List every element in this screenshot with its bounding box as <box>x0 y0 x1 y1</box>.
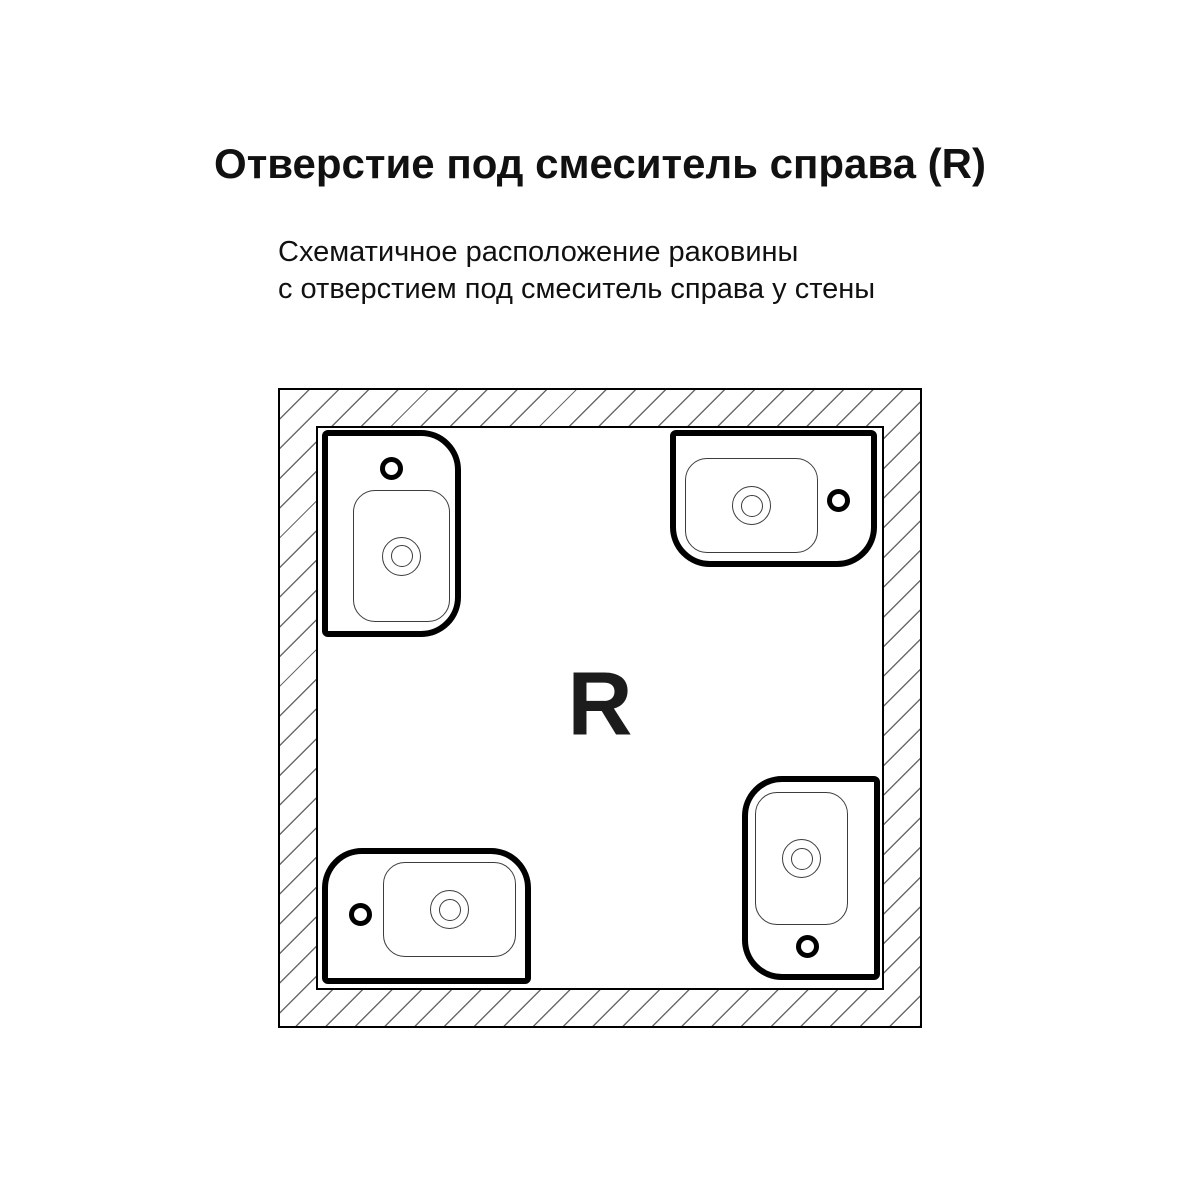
faucet-hole-icon <box>349 903 372 926</box>
sink-bottom-right <box>742 776 880 980</box>
room-orientation-label: R <box>568 659 633 749</box>
floor-plan: R <box>278 388 922 1028</box>
drain-hole-inner <box>741 495 763 517</box>
sink-top-left <box>322 430 461 637</box>
sink-basin <box>685 458 818 553</box>
sink-bottom-left <box>322 848 531 984</box>
page-canvas: Отверстие под смеситель справа (R) Схема… <box>0 0 1200 1200</box>
subtitle-line-1: Схематичное расположение раковины <box>278 234 875 271</box>
faucet-hole-icon <box>380 457 403 480</box>
drain-hole-icon <box>382 537 421 576</box>
page-title: Отверстие под смеситель справа (R) <box>0 139 1200 189</box>
sink-basin <box>383 862 516 957</box>
drain-hole-inner <box>791 848 813 870</box>
subtitle-line-2: с отверстием под смеситель справа у стен… <box>278 271 875 308</box>
drain-hole-inner <box>391 545 413 567</box>
drain-hole-icon <box>782 839 821 878</box>
sink-basin <box>353 490 450 622</box>
room-interior: R <box>316 426 884 990</box>
drain-hole-icon <box>430 890 469 929</box>
sink-top-right <box>670 430 877 567</box>
drain-hole-inner <box>439 899 461 921</box>
drain-hole-icon <box>732 486 771 525</box>
faucet-hole-icon <box>827 489 850 512</box>
sink-basin <box>755 792 848 925</box>
faucet-hole-icon <box>796 935 819 958</box>
page-subtitle: Схематичное расположение раковины с отве… <box>278 234 875 308</box>
